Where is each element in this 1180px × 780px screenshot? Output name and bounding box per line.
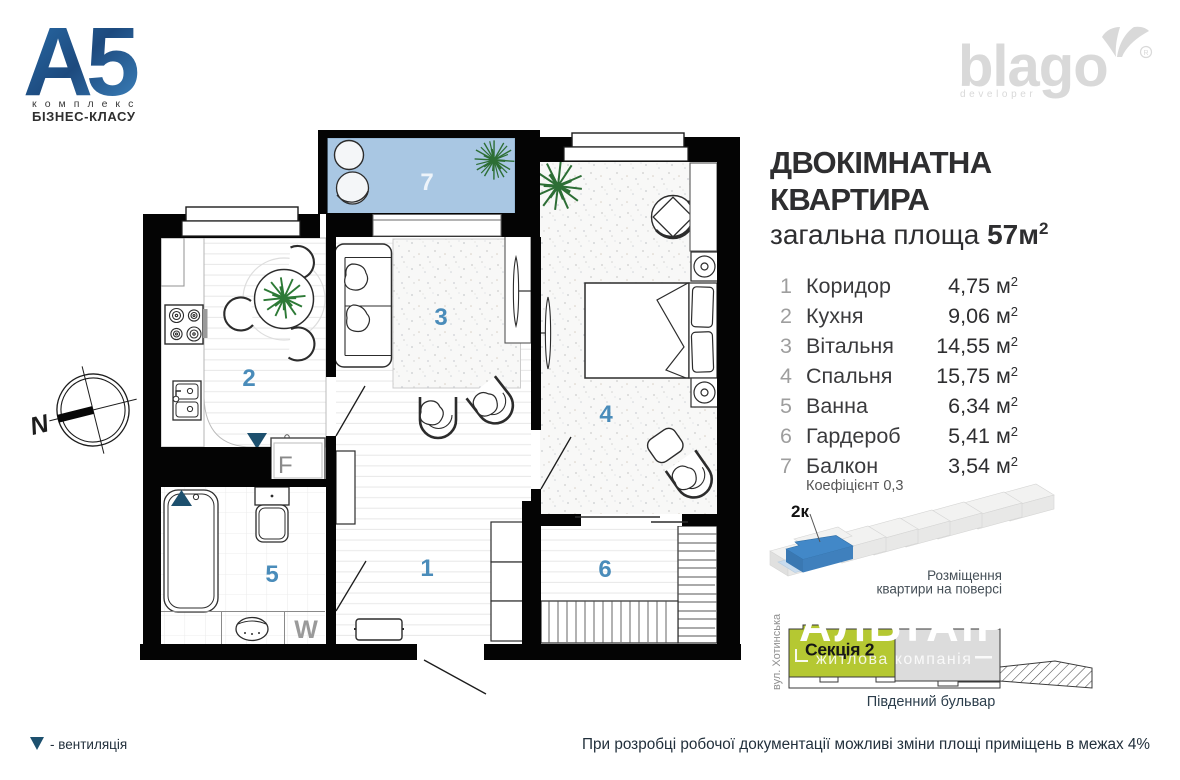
svg-text:6: 6 bbox=[780, 424, 792, 448]
svg-text:Коридор: Коридор bbox=[806, 274, 891, 298]
svg-text:Ванна: Ванна bbox=[806, 394, 868, 418]
svg-text:6,34 м2: 6,34 м2 bbox=[948, 394, 1018, 418]
svg-text:квартири на поверсі: квартири на поверсі bbox=[877, 582, 1003, 597]
svg-text:5: 5 bbox=[265, 561, 278, 588]
svg-text:2к: 2к bbox=[791, 502, 809, 521]
svg-text:Спальня: Спальня bbox=[806, 364, 892, 388]
svg-text:6: 6 bbox=[598, 556, 611, 583]
svg-text:ДВОКІМНАТНА: ДВОКІМНАТНА bbox=[770, 145, 992, 180]
svg-text:3: 3 bbox=[434, 304, 447, 331]
svg-text:Секція 2: Секція 2 bbox=[805, 640, 875, 660]
svg-text:БІЗНЕС-КЛАСУ: БІЗНЕС-КЛАСУ bbox=[32, 109, 136, 124]
svg-text:W: W bbox=[294, 616, 318, 644]
svg-text:4: 4 bbox=[780, 364, 792, 388]
svg-text:При розробці робочої документа: При розробці робочої документації можлив… bbox=[582, 736, 1150, 753]
svg-text:4: 4 bbox=[599, 401, 613, 428]
svg-text:Кухня: Кухня bbox=[806, 304, 864, 328]
svg-text:1: 1 bbox=[780, 274, 792, 298]
svg-text:3,54 м2: 3,54 м2 bbox=[948, 454, 1018, 478]
svg-text:3: 3 bbox=[780, 334, 792, 358]
svg-text:1: 1 bbox=[420, 555, 433, 582]
svg-text:15,75 м2: 15,75 м2 bbox=[936, 364, 1018, 388]
svg-text:Південний бульвар: Південний бульвар bbox=[867, 694, 996, 710]
svg-text:Балкон: Балкон bbox=[806, 454, 878, 478]
svg-text:7: 7 bbox=[780, 454, 792, 478]
svg-text:7: 7 bbox=[420, 169, 433, 196]
svg-text:загальна площа 57м2: загальна площа 57м2 bbox=[770, 219, 1048, 250]
svg-text:- вентиляція: - вентиляція bbox=[50, 737, 127, 752]
svg-text:F: F bbox=[278, 452, 293, 479]
svg-text:вул. Хотинська: вул. Хотинська bbox=[771, 613, 783, 690]
svg-text:2: 2 bbox=[242, 365, 255, 392]
svg-text:Вітальня: Вітальня bbox=[806, 334, 894, 358]
svg-text:developer: developer bbox=[960, 89, 1036, 100]
svg-text:4,75 м2: 4,75 м2 bbox=[948, 274, 1018, 298]
svg-text:R: R bbox=[1144, 50, 1149, 57]
svg-text:2: 2 bbox=[780, 304, 792, 328]
svg-text:5,41 м2: 5,41 м2 bbox=[948, 424, 1018, 448]
svg-text:Коефіцієнт 0,3: Коефіцієнт 0,3 bbox=[806, 478, 904, 494]
svg-text:9,06 м2: 9,06 м2 bbox=[948, 304, 1018, 328]
svg-text:Гардероб: Гардероб bbox=[806, 424, 901, 448]
svg-text:5: 5 bbox=[780, 394, 792, 418]
svg-text:14,55 м2: 14,55 м2 bbox=[936, 334, 1018, 358]
svg-text:КВАРТИРА: КВАРТИРА bbox=[770, 182, 929, 217]
